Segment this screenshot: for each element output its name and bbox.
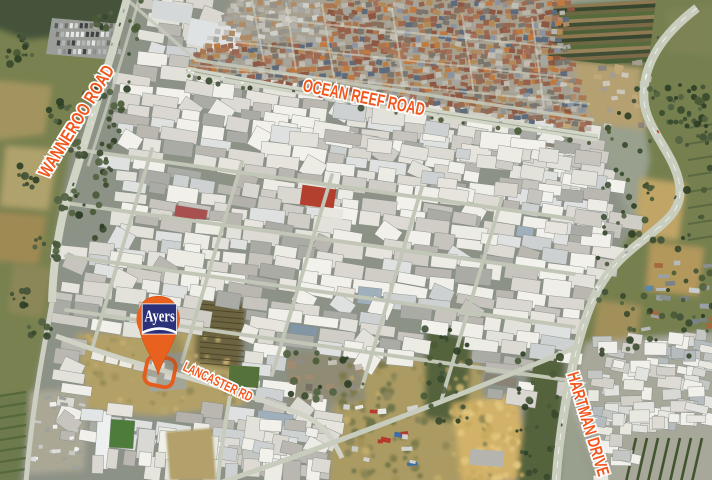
svg-text:Ayers: Ayers bbox=[144, 307, 175, 326]
